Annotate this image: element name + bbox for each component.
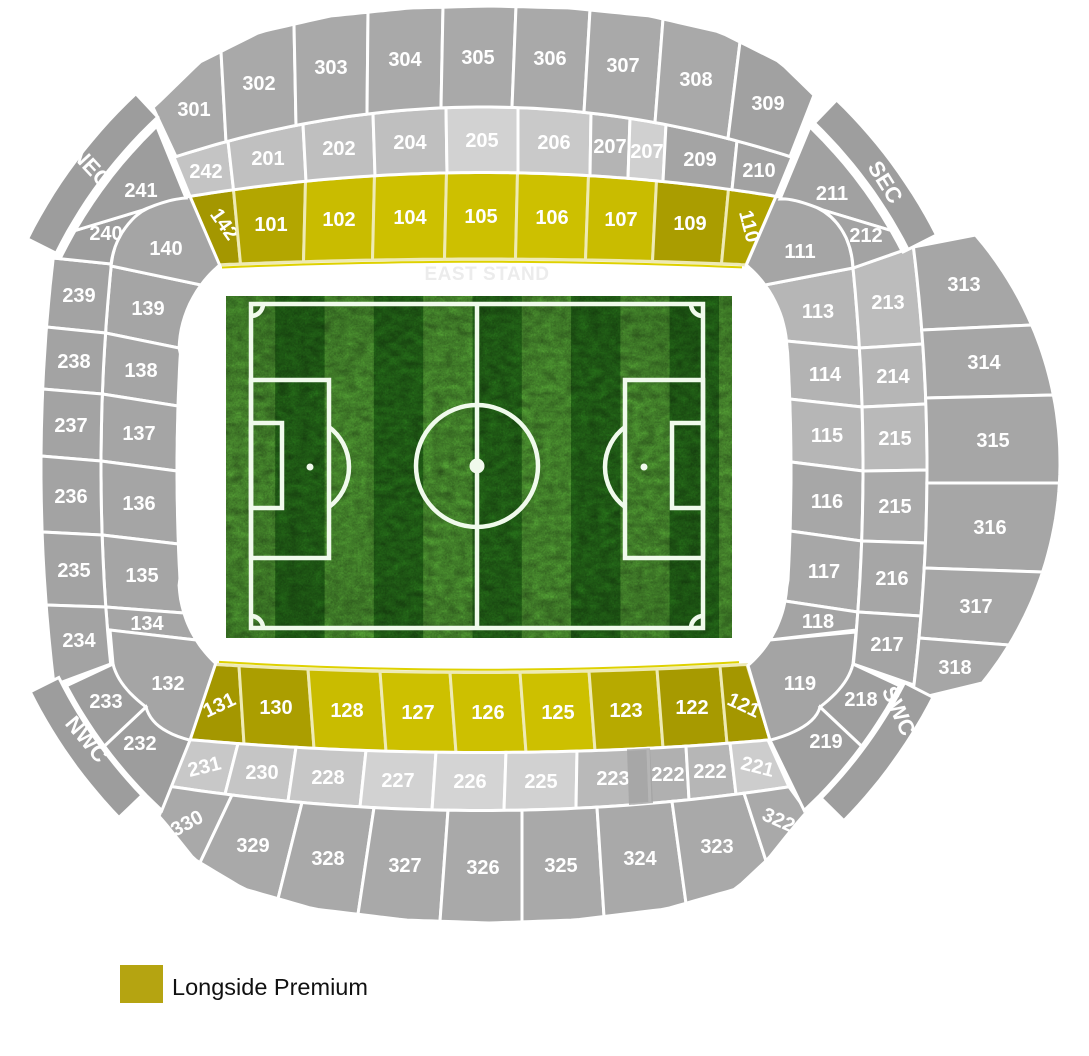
svg-text:238: 238	[57, 351, 90, 373]
svg-text:116: 116	[811, 491, 843, 513]
svg-text:206: 206	[537, 132, 570, 154]
svg-text:227: 227	[381, 770, 414, 792]
svg-text:316: 316	[973, 517, 1006, 539]
svg-text:130: 130	[259, 697, 292, 719]
svg-text:223: 223	[596, 768, 629, 790]
svg-text:328: 328	[311, 848, 344, 870]
svg-text:128: 128	[330, 700, 363, 722]
svg-text:315: 315	[976, 430, 1009, 452]
svg-text:Longside Premium: Longside Premium	[172, 974, 368, 1000]
svg-text:118: 118	[802, 611, 834, 633]
svg-text:301: 301	[177, 99, 210, 121]
svg-text:115: 115	[811, 425, 843, 447]
svg-text:127: 127	[401, 702, 434, 724]
svg-text:218: 218	[844, 689, 877, 711]
svg-text:302: 302	[242, 73, 275, 95]
svg-text:122: 122	[675, 697, 708, 719]
svg-text:222: 222	[693, 761, 726, 783]
svg-text:304: 304	[388, 49, 422, 71]
svg-text:126: 126	[471, 702, 504, 724]
svg-text:104: 104	[393, 207, 427, 229]
svg-text:309: 309	[751, 93, 784, 115]
svg-text:119: 119	[784, 673, 816, 695]
svg-text:306: 306	[533, 48, 566, 70]
svg-text:140: 140	[149, 238, 182, 260]
svg-text:201: 201	[251, 148, 284, 170]
svg-text:222: 222	[651, 764, 684, 786]
svg-text:305: 305	[461, 47, 494, 69]
svg-text:308: 308	[679, 69, 712, 91]
svg-text:318: 318	[938, 657, 971, 679]
svg-text:105: 105	[464, 206, 497, 228]
svg-text:317: 317	[959, 596, 992, 618]
svg-text:241: 241	[124, 180, 157, 202]
svg-text:313: 313	[947, 274, 980, 296]
svg-text:106: 106	[535, 207, 568, 229]
svg-text:139: 139	[131, 298, 164, 320]
svg-text:109: 109	[673, 213, 706, 235]
svg-text:136: 136	[122, 493, 155, 515]
svg-text:123: 123	[609, 700, 642, 722]
svg-text:237: 237	[54, 415, 87, 437]
svg-text:137: 137	[122, 423, 155, 445]
svg-text:326: 326	[466, 857, 499, 879]
svg-text:228: 228	[311, 767, 344, 789]
svg-text:215: 215	[878, 428, 911, 450]
svg-text:329: 329	[236, 835, 269, 857]
svg-text:132: 132	[151, 673, 184, 695]
svg-text:324: 324	[623, 848, 657, 870]
svg-text:215: 215	[878, 496, 911, 518]
svg-text:325: 325	[544, 855, 577, 877]
svg-text:205: 205	[465, 130, 498, 152]
svg-text:219: 219	[809, 731, 842, 753]
svg-text:209: 209	[683, 149, 716, 171]
svg-text:307: 307	[606, 55, 639, 77]
svg-text:125: 125	[541, 702, 574, 724]
svg-text:226: 226	[453, 771, 486, 793]
svg-text:107: 107	[604, 209, 637, 231]
svg-text:213: 213	[871, 292, 904, 314]
svg-text:323: 323	[700, 836, 733, 858]
svg-text:135: 135	[125, 565, 158, 587]
svg-text:138: 138	[124, 360, 157, 382]
svg-text:239: 239	[62, 285, 95, 307]
svg-text:236: 236	[54, 486, 87, 508]
svg-text:233: 233	[89, 691, 122, 713]
svg-text:232: 232	[123, 733, 156, 755]
svg-text:111: 111	[784, 241, 815, 263]
svg-text:303: 303	[314, 57, 347, 79]
svg-text:216: 216	[875, 568, 908, 590]
svg-text:207: 207	[630, 141, 663, 163]
svg-text:212: 212	[849, 225, 882, 247]
svg-text:217: 217	[870, 634, 903, 656]
svg-text:214: 214	[876, 366, 910, 388]
svg-text:234: 234	[62, 630, 96, 652]
svg-text:225: 225	[524, 771, 557, 793]
svg-text:EAST STAND: EAST STAND	[425, 264, 550, 285]
svg-text:117: 117	[808, 561, 840, 583]
svg-text:113: 113	[802, 301, 834, 323]
svg-text:102: 102	[322, 209, 355, 231]
svg-text:314: 314	[967, 352, 1001, 374]
svg-text:235: 235	[57, 560, 90, 582]
svg-text:240: 240	[89, 223, 122, 245]
svg-text:101: 101	[254, 214, 287, 236]
svg-text:114: 114	[809, 364, 842, 386]
svg-text:204: 204	[393, 132, 427, 154]
svg-text:230: 230	[245, 762, 278, 784]
svg-text:202: 202	[322, 138, 355, 160]
svg-text:207: 207	[593, 136, 626, 158]
svg-text:211: 211	[816, 183, 848, 205]
svg-text:210: 210	[742, 160, 775, 182]
svg-text:242: 242	[189, 161, 222, 183]
svg-text:327: 327	[388, 855, 421, 877]
